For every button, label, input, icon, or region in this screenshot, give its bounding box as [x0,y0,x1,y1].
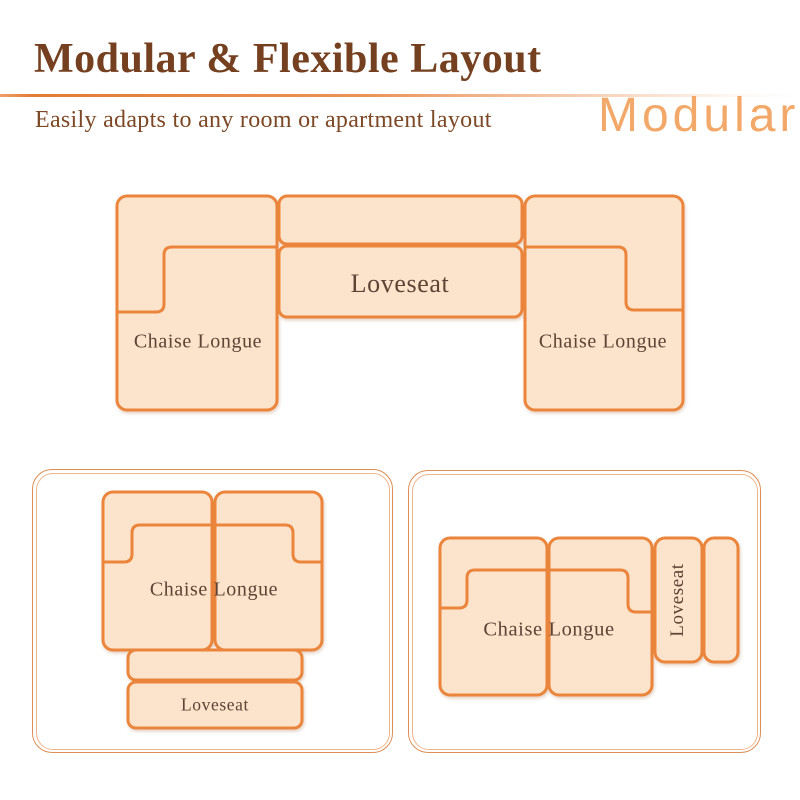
top-loveseat-back-shape [279,196,522,244]
top-left-chaise-arm-line [117,247,277,312]
bl-loveseat-label: Loveseat [181,695,249,716]
br-loveseat-label: Loveseat [667,563,689,636]
top-right-chaise-label: Chaise Longue [539,331,667,354]
bl-chaise-label: Chaise Longue [150,579,278,602]
top-left-chaise-label: Chaise Longue [134,331,262,354]
br-chaise-label: Chaise Longue [483,619,614,642]
top-right-chaise-shape [525,196,683,410]
brand-watermark: Modular [598,88,799,143]
top-layout-diagram [117,196,683,410]
bottom-right-layout-panel [408,470,761,753]
top-loveseat-label: Loveseat [351,269,450,299]
panel-inner-border [412,474,758,750]
page-title: Modular & Flexible Layout [34,36,542,82]
top-right-chaise-arm-line [525,247,683,310]
top-left-chaise-shape [117,196,277,410]
page-subtitle: Easily adapts to any room or apartment l… [35,107,492,134]
